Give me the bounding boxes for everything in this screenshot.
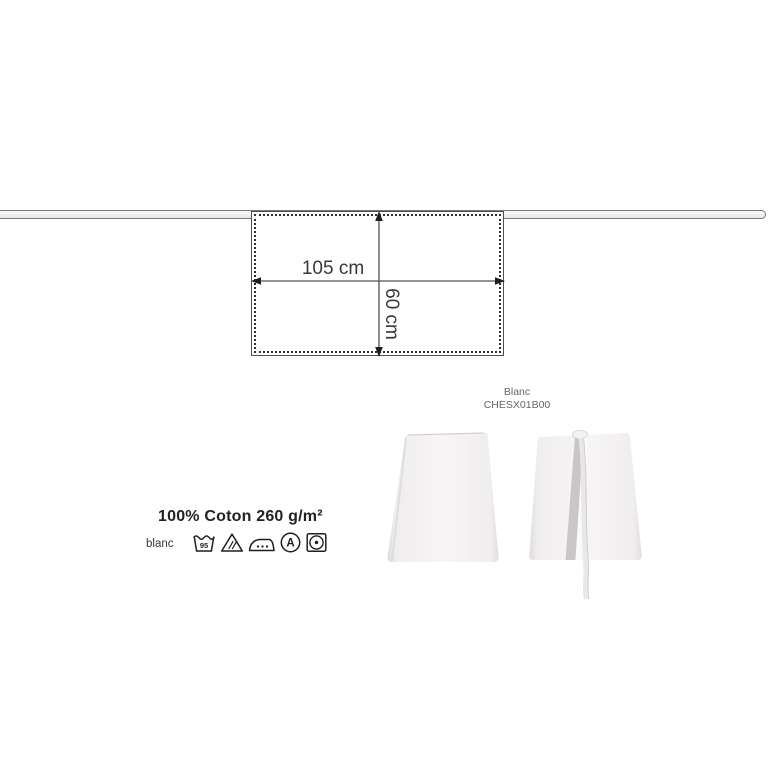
height-dimension-label: 60 cm xyxy=(380,288,402,340)
product-label: Blanc CHESX01B00 xyxy=(437,386,597,412)
dimension-lines xyxy=(0,0,770,770)
arrow-right-icon xyxy=(495,277,505,285)
arrow-down-icon xyxy=(375,347,383,357)
wash-tub-icon: 95 xyxy=(191,531,217,554)
wash-temp-label: 95 xyxy=(200,541,208,550)
product-sku: CHESX01B00 xyxy=(437,399,597,412)
dry-clean-letter: A xyxy=(286,538,294,550)
dry-clean-circle-icon: A xyxy=(279,531,302,554)
color-variant-label: blanc xyxy=(146,538,174,550)
product-spec-sheet: 105 cm 60 cm Blanc CHESX01B00 100% Coton xyxy=(0,0,770,770)
care-symbols-row: 95 A xyxy=(191,531,328,554)
width-dimension-label: 105 cm xyxy=(287,258,379,280)
tumble-dry-icon xyxy=(305,531,328,554)
bleach-triangle-icon xyxy=(220,531,244,554)
iron-icon xyxy=(247,531,276,554)
fabric-spec: 100% Coton 260 g/m² xyxy=(158,508,323,526)
arrow-up-icon xyxy=(375,211,383,221)
product-color-name: Blanc xyxy=(437,386,597,399)
arrow-left-icon xyxy=(251,277,261,285)
